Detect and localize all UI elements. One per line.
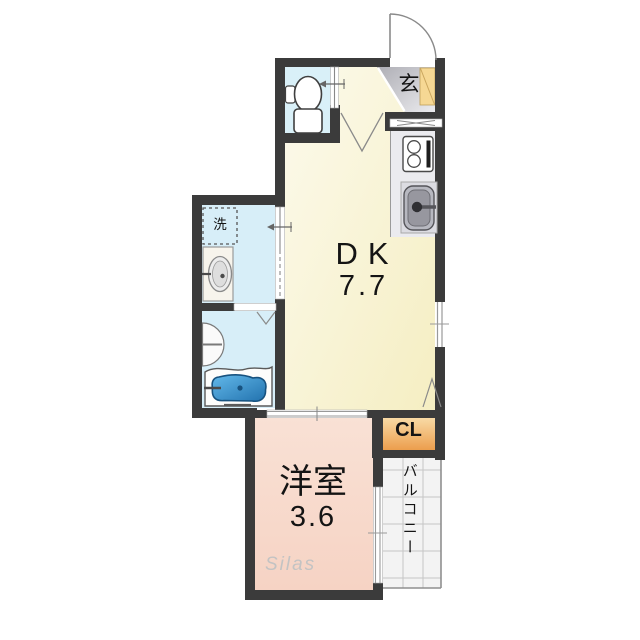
closet-label: CL xyxy=(382,420,435,441)
kitchen-sink-icon xyxy=(401,182,437,233)
floor-plan: 玄 DK 7.7 洗 CL 洋室 3.6 バルコニー Silas xyxy=(0,0,640,640)
floor-plan-drawing xyxy=(0,0,640,640)
western-room-area-label: 3.6 xyxy=(249,502,377,532)
dk-area-label: 7.7 xyxy=(306,271,418,301)
dk-label: DK xyxy=(306,238,418,271)
toilet-sliding-door xyxy=(331,67,339,108)
stove-icon xyxy=(403,137,433,172)
entrance-label: 玄 xyxy=(387,74,431,96)
laundry-label: 洗 xyxy=(202,218,238,232)
balcony-label: バルコニー xyxy=(401,463,417,583)
kitchen-high-window xyxy=(390,119,442,127)
washroom-sliding-door xyxy=(276,207,285,299)
washbasin-icon xyxy=(202,247,233,301)
bathtub-icon xyxy=(204,367,272,406)
watermark: Silas xyxy=(265,555,375,575)
western-room-label: 洋室 xyxy=(249,465,377,501)
entrance-door-icon xyxy=(390,14,436,60)
bathroom-door-sill xyxy=(234,304,276,311)
